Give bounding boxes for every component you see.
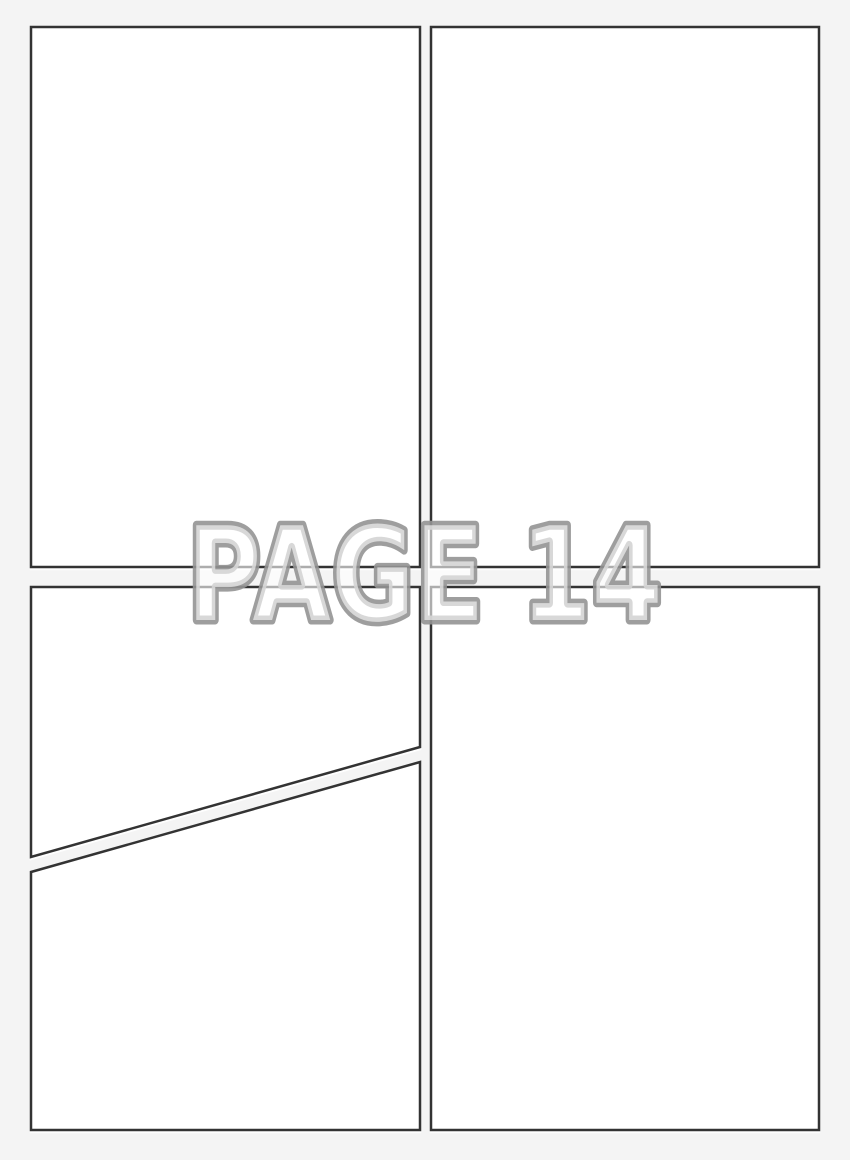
comic-page-template: PAGE 14	[0, 0, 850, 1160]
panel-top-right	[431, 27, 819, 567]
page-number-label: PAGE 14	[187, 499, 663, 651]
page-canvas: PAGE 14	[0, 0, 850, 1160]
panel-top-left	[31, 27, 420, 567]
panel-bottom-right	[431, 587, 819, 1130]
